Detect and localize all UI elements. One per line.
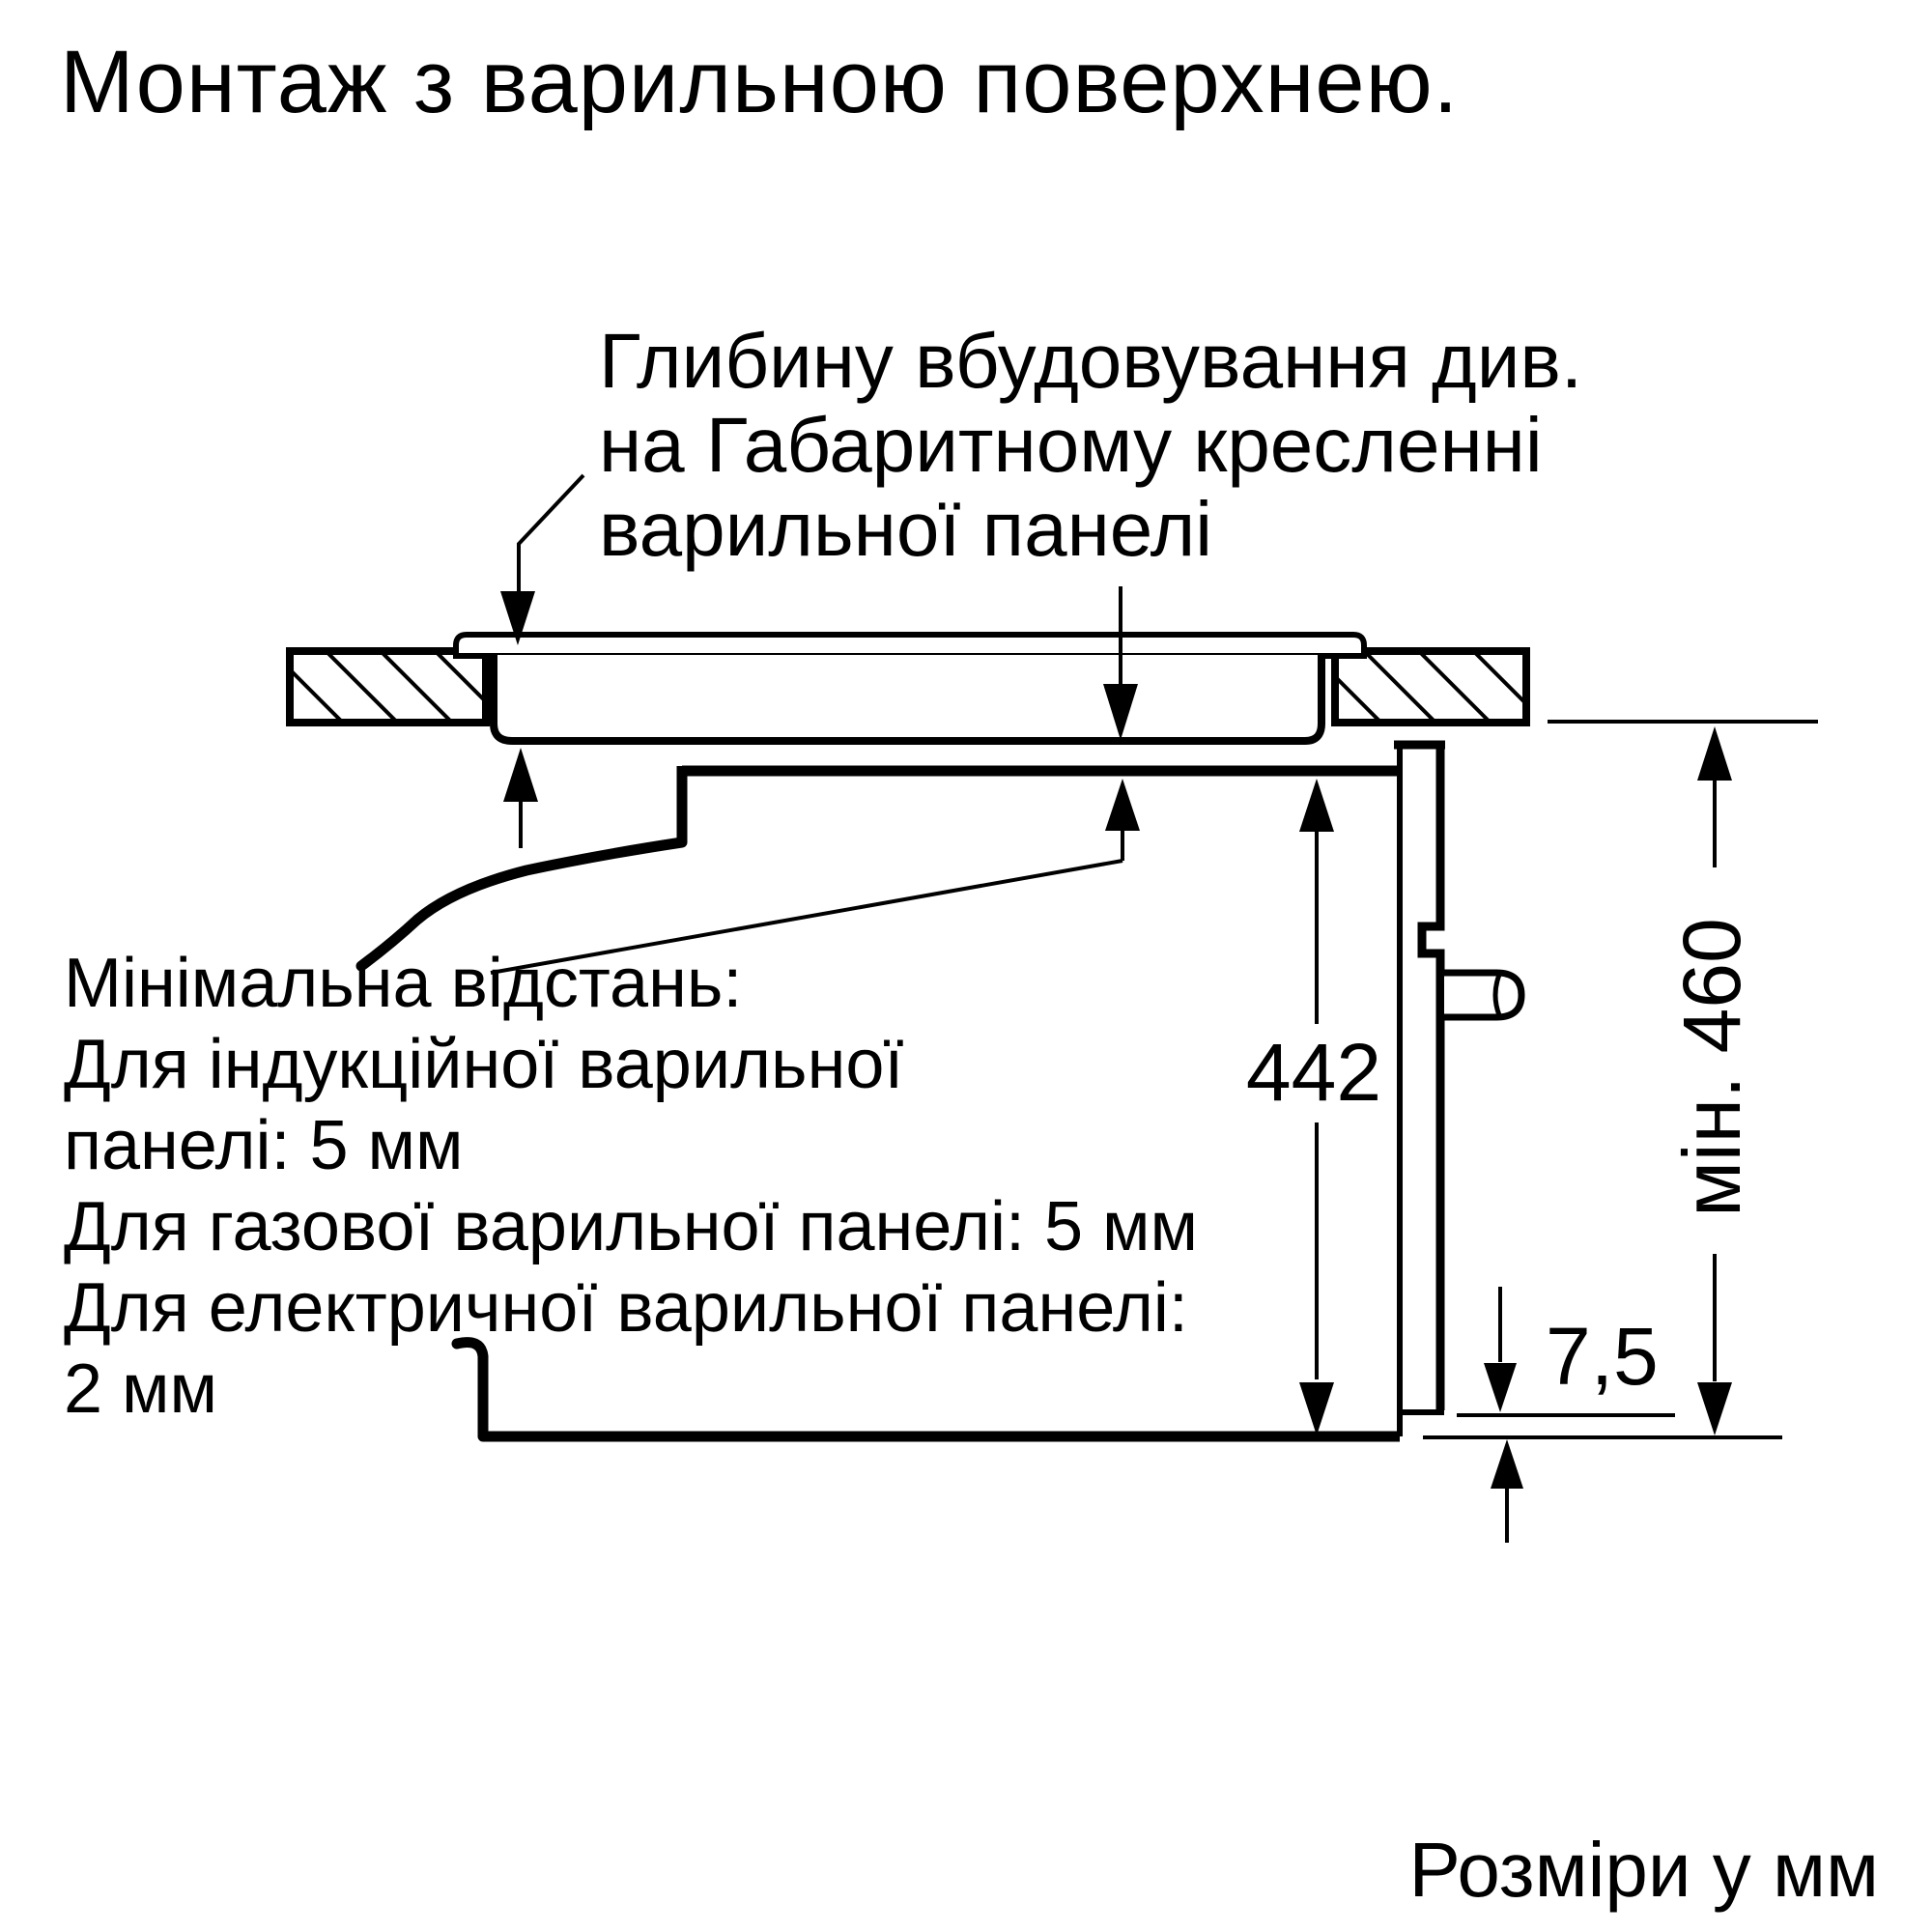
dim-75-arrow-down-icon [1484, 1363, 1517, 1412]
dim-442-arrow-bottom-icon [1299, 1382, 1334, 1435]
arrow-up-at-tub-bottom-icon [503, 748, 538, 802]
installation-diagram-page: { "title": "Монтаж з варильною поверхнею… [0, 0, 1932, 1932]
callout-minimum-distance: Мінімальна відстань: Для індукційної вар… [64, 943, 1198, 1430]
dim-442-arrow-top-icon [1299, 779, 1334, 832]
dimension-niche-min-height-label: мін. 460 [1671, 874, 1752, 1261]
dim-75-arrow-up-icon [1491, 1439, 1523, 1489]
callout-left-line6: 2 мм [64, 1349, 1198, 1430]
door-handle [1444, 973, 1521, 1017]
units-note: Розміри у мм [1348, 1826, 1879, 1915]
page-title: Монтаж з варильною поверхнею. [60, 29, 1459, 135]
worktop-left-hatch [290, 651, 486, 723]
dim-min460-arrow-bottom-icon [1697, 1382, 1732, 1435]
callout-left-line4: Для газової варильної панелі: 5 мм [64, 1186, 1198, 1267]
hob-glass [456, 635, 1364, 656]
dim-min460-arrow-top-icon [1697, 726, 1732, 781]
callout-top-line1: Глибину вбудовування див. [599, 319, 1582, 403]
worktop-right-hatch [1335, 651, 1526, 723]
callout-top-line3: варильної панелі [599, 487, 1582, 571]
callout-left-line1: Мінімальна відстань: [64, 943, 1198, 1024]
callout-top-leader-line [519, 475, 583, 595]
callout-left-line5: Для електричної варильної панелі: [64, 1267, 1198, 1349]
hob-tub [494, 655, 1321, 741]
callout-left-line3: панелі: 5 мм [64, 1105, 1198, 1186]
callout-top-line2: на Габаритному кресленні [599, 403, 1582, 487]
callout-installation-depth: Глибину вбудовування див. на Габаритному… [599, 319, 1582, 571]
arrow-up-at-oven-top-icon [1105, 779, 1140, 831]
callout-left-line2: Для індукційної варильної [64, 1024, 1198, 1105]
dimension-oven-height-label: 442 [1178, 1032, 1450, 1113]
dimension-bottom-gap-label: 7,5 [1546, 1316, 1659, 1397]
